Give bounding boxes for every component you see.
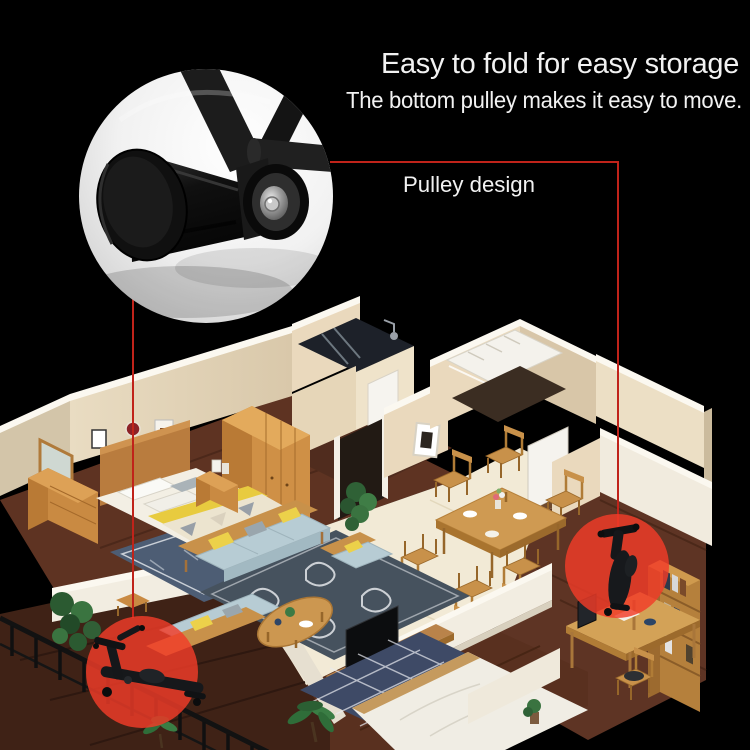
product-showcase-image: Easy to fold for easy storage The bottom…	[0, 0, 750, 750]
shower-head	[390, 332, 398, 340]
pulley-wheel	[243, 164, 309, 240]
headline: Easy to fold for easy storage	[381, 48, 739, 80]
product-banner: Easy to fold for easy storage The bottom…	[0, 0, 750, 750]
table-plant	[285, 607, 295, 617]
subheadline: The bottom pulley makes it easy to move.	[346, 87, 742, 113]
axle-bolt	[265, 197, 279, 211]
pulley-design-label: Pulley design	[403, 172, 535, 197]
